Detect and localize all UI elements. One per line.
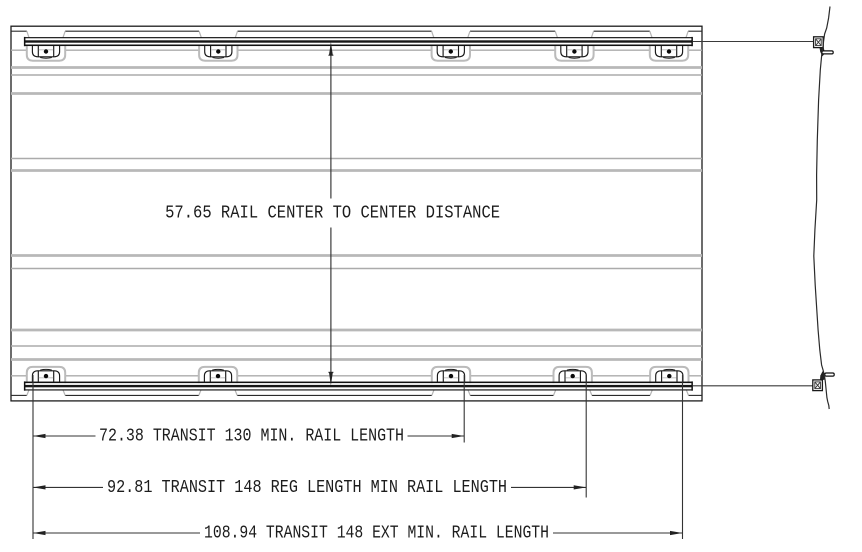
- svg-text:92.81 TRANSIT 148 REG LENGTH M: 92.81 TRANSIT 148 REG LENGTH MIN RAIL LE…: [107, 478, 507, 498]
- svg-text:72.38 TRANSIT 130 MIN. RAIL LE: 72.38 TRANSIT 130 MIN. RAIL LENGTH: [99, 427, 404, 447]
- svg-text:108.94 TRANSIT 148 EXT MIN. RA: 108.94 TRANSIT 148 EXT MIN. RAIL LENGTH: [204, 524, 549, 544]
- svg-text:57.65 RAIL CENTER TO CENTER DI: 57.65 RAIL CENTER TO CENTER DISTANCE: [165, 204, 500, 224]
